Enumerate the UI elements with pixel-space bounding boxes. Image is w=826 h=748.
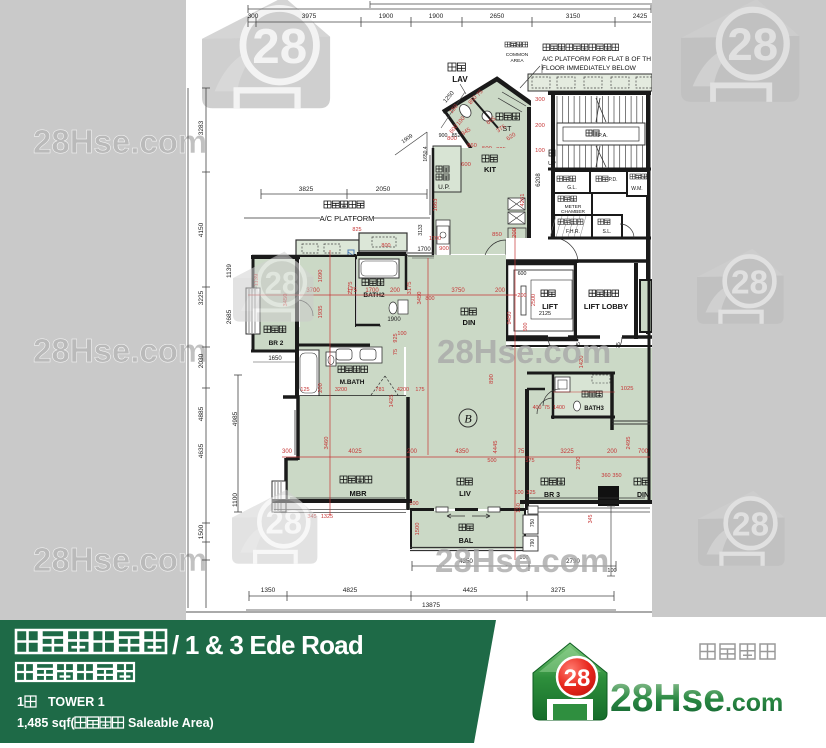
svg-text:KIT: KIT	[484, 165, 497, 174]
svg-text:200: 200	[495, 288, 506, 294]
svg-text:13875: 13875	[422, 602, 440, 609]
svg-text:G.L.: G.L.	[567, 185, 576, 191]
svg-text:LIFT LOBBY: LIFT LOBBY	[584, 302, 628, 311]
svg-text:28Hse.com: 28Hse.com	[33, 332, 207, 369]
svg-text:500: 500	[523, 323, 529, 332]
svg-text:A/C PLATFORM: A/C PLATFORM	[320, 214, 375, 223]
svg-text:2050: 2050	[376, 186, 391, 193]
svg-text:28Hse.com: 28Hse.com	[33, 123, 207, 160]
svg-text:4425: 4425	[463, 587, 478, 594]
svg-text:1: 1	[17, 695, 24, 709]
svg-text:800: 800	[425, 296, 434, 302]
svg-text:4445: 4445	[493, 441, 499, 454]
svg-text:300: 300	[248, 13, 259, 20]
svg-text:1700: 1700	[429, 236, 441, 242]
svg-text:28: 28	[266, 504, 303, 541]
svg-text:MBR: MBR	[349, 489, 367, 498]
svg-text:1100: 1100	[232, 493, 239, 507]
svg-text:1900: 1900	[387, 317, 401, 323]
svg-text:28: 28	[727, 19, 778, 70]
svg-text:1350: 1350	[261, 587, 276, 594]
svg-text:1500: 1500	[198, 524, 205, 539]
svg-text:9450: 9450	[507, 312, 513, 325]
svg-text:28Hse.com: 28Hse.com	[33, 541, 207, 578]
svg-text:360: 360	[601, 473, 610, 479]
svg-text:3175: 3175	[407, 282, 413, 295]
svg-text:200: 200	[407, 449, 418, 455]
svg-text:600: 600	[461, 162, 471, 168]
svg-text:2175: 2175	[348, 282, 354, 295]
svg-text:4885: 4885	[198, 406, 205, 421]
svg-text:DIN: DIN	[463, 318, 476, 327]
svg-text:825: 825	[352, 227, 361, 233]
svg-text:UP: UP	[548, 161, 556, 167]
svg-text:28Hse.com: 28Hse.com	[435, 542, 609, 579]
svg-text:2495: 2495	[626, 437, 632, 450]
svg-text:4261: 4261	[520, 194, 526, 207]
svg-text:1090: 1090	[318, 270, 324, 283]
svg-text:3283: 3283	[198, 120, 205, 135]
svg-text:1663: 1663	[433, 199, 439, 212]
svg-text:200: 200	[535, 123, 545, 129]
svg-text:1,485 sqf(: 1,485 sqf(	[17, 716, 76, 730]
svg-text:28: 28	[252, 19, 307, 74]
svg-text:3150: 3150	[566, 13, 581, 20]
svg-text:3200: 3200	[335, 387, 347, 393]
svg-text:4150: 4150	[198, 222, 205, 237]
svg-text:700: 700	[638, 449, 649, 455]
svg-text:28: 28	[564, 665, 591, 692]
svg-text:890: 890	[489, 374, 495, 384]
svg-text:100: 100	[397, 331, 406, 337]
svg-text:COMMON: COMMON	[506, 52, 529, 58]
svg-text:200: 200	[390, 288, 401, 294]
svg-text:2790: 2790	[576, 457, 582, 470]
svg-text:300: 300	[282, 449, 293, 455]
svg-text:345: 345	[588, 515, 594, 524]
svg-text:P.A.: P.A.	[598, 133, 608, 139]
svg-text:1325: 1325	[321, 514, 333, 520]
svg-text:325: 325	[526, 490, 535, 496]
svg-text:/ 1 & 3 Ede Road: / 1 & 3 Ede Road	[172, 630, 363, 660]
svg-text:2425: 2425	[633, 13, 648, 20]
svg-text:1425: 1425	[389, 395, 395, 408]
svg-text:900: 900	[439, 246, 449, 252]
svg-text:200: 200	[517, 293, 526, 299]
svg-text:S.L.: S.L.	[603, 229, 612, 235]
svg-text:1900: 1900	[429, 13, 444, 20]
svg-text:400: 400	[533, 405, 542, 411]
svg-text:781: 781	[375, 387, 384, 393]
svg-text:AREA: AREA	[510, 58, 524, 64]
svg-text:600: 600	[518, 271, 527, 277]
svg-text:1400: 1400	[553, 405, 565, 411]
svg-text:2125: 2125	[539, 311, 551, 317]
svg-text:3750: 3750	[451, 288, 465, 294]
svg-text:75: 75	[518, 449, 525, 455]
svg-text:125: 125	[300, 387, 309, 393]
svg-text:3225: 3225	[560, 449, 574, 455]
svg-text:3450: 3450	[417, 292, 423, 305]
svg-text:28: 28	[265, 265, 300, 300]
svg-text:3460: 3460	[324, 437, 330, 450]
svg-text:4200: 4200	[397, 387, 409, 393]
svg-text:3975: 3975	[302, 13, 317, 20]
svg-text:W.M.: W.M.	[631, 186, 642, 192]
svg-text:1650: 1650	[268, 356, 282, 362]
svg-text:Saleable Area): Saleable Area)	[128, 716, 214, 730]
svg-text:2650: 2650	[490, 13, 505, 20]
svg-text:800: 800	[381, 243, 390, 249]
svg-text:M.BATH: M.BATH	[340, 379, 365, 386]
svg-text:500: 500	[487, 458, 496, 464]
svg-text:2030: 2030	[198, 353, 205, 368]
svg-text:200: 200	[607, 449, 618, 455]
svg-text:850: 850	[492, 232, 502, 238]
svg-text:28: 28	[731, 264, 768, 301]
svg-text:4825: 4825	[343, 587, 358, 594]
svg-text:2500: 2500	[531, 294, 537, 306]
svg-text:4635: 4635	[198, 443, 205, 458]
svg-text:1650.4: 1650.4	[423, 146, 429, 162]
svg-text:LIV: LIV	[459, 489, 471, 498]
svg-text:6208: 6208	[536, 173, 542, 187]
svg-text:100: 100	[514, 490, 523, 496]
svg-text:200: 200	[318, 383, 324, 393]
svg-text:3133: 3133	[418, 224, 424, 235]
svg-text:4985: 4985	[232, 411, 239, 426]
svg-text:1500: 1500	[415, 523, 421, 536]
svg-text:28Hse.com: 28Hse.com	[437, 333, 611, 370]
svg-text:575: 575	[525, 458, 534, 464]
svg-text:900: 900	[439, 133, 448, 139]
svg-text:1900: 1900	[379, 13, 394, 20]
svg-text:3825: 3825	[299, 186, 314, 193]
svg-text:LIFT: LIFT	[542, 302, 558, 311]
svg-text:1700: 1700	[417, 247, 431, 253]
svg-text:350: 350	[612, 473, 621, 479]
svg-text:100: 100	[535, 148, 545, 154]
svg-text:BATH3: BATH3	[584, 406, 604, 412]
svg-text:4025: 4025	[348, 449, 362, 455]
svg-text:3225: 3225	[198, 290, 205, 305]
svg-text:TOWER 1: TOWER 1	[48, 695, 105, 709]
svg-text:1935: 1935	[318, 306, 324, 319]
svg-text:4350: 4350	[455, 449, 469, 455]
svg-text:2685: 2685	[226, 309, 233, 324]
svg-text:75: 75	[393, 349, 399, 355]
svg-text:75: 75	[544, 405, 550, 411]
svg-text:B: B	[464, 412, 472, 426]
svg-text:100: 100	[409, 501, 418, 507]
svg-text:P.D.: P.D.	[608, 177, 617, 183]
svg-text:A/C PLATFORM FOR FLAT B OF TH: A/C PLATFORM FOR FLAT B OF TH	[542, 56, 651, 63]
svg-text:852: 852	[452, 133, 461, 139]
svg-text:U.P.: U.P.	[438, 184, 450, 191]
svg-text:175: 175	[415, 387, 424, 393]
svg-text:1700: 1700	[365, 288, 379, 294]
svg-text:3275: 3275	[551, 587, 566, 594]
svg-text:150: 150	[516, 503, 522, 513]
svg-text:FLOOR IMMEDIATELY BELOW: FLOOR IMMEDIATELY BELOW	[542, 65, 637, 72]
svg-text:1139: 1139	[226, 264, 233, 278]
svg-text:28: 28	[732, 506, 769, 543]
svg-text:BR 2: BR 2	[269, 340, 284, 347]
svg-text:300: 300	[535, 97, 545, 103]
svg-text:1025: 1025	[621, 386, 634, 392]
svg-text:F.H.R.: F.H.R.	[566, 229, 580, 235]
svg-text:LAV: LAV	[452, 75, 468, 84]
svg-text:750: 750	[530, 519, 536, 528]
